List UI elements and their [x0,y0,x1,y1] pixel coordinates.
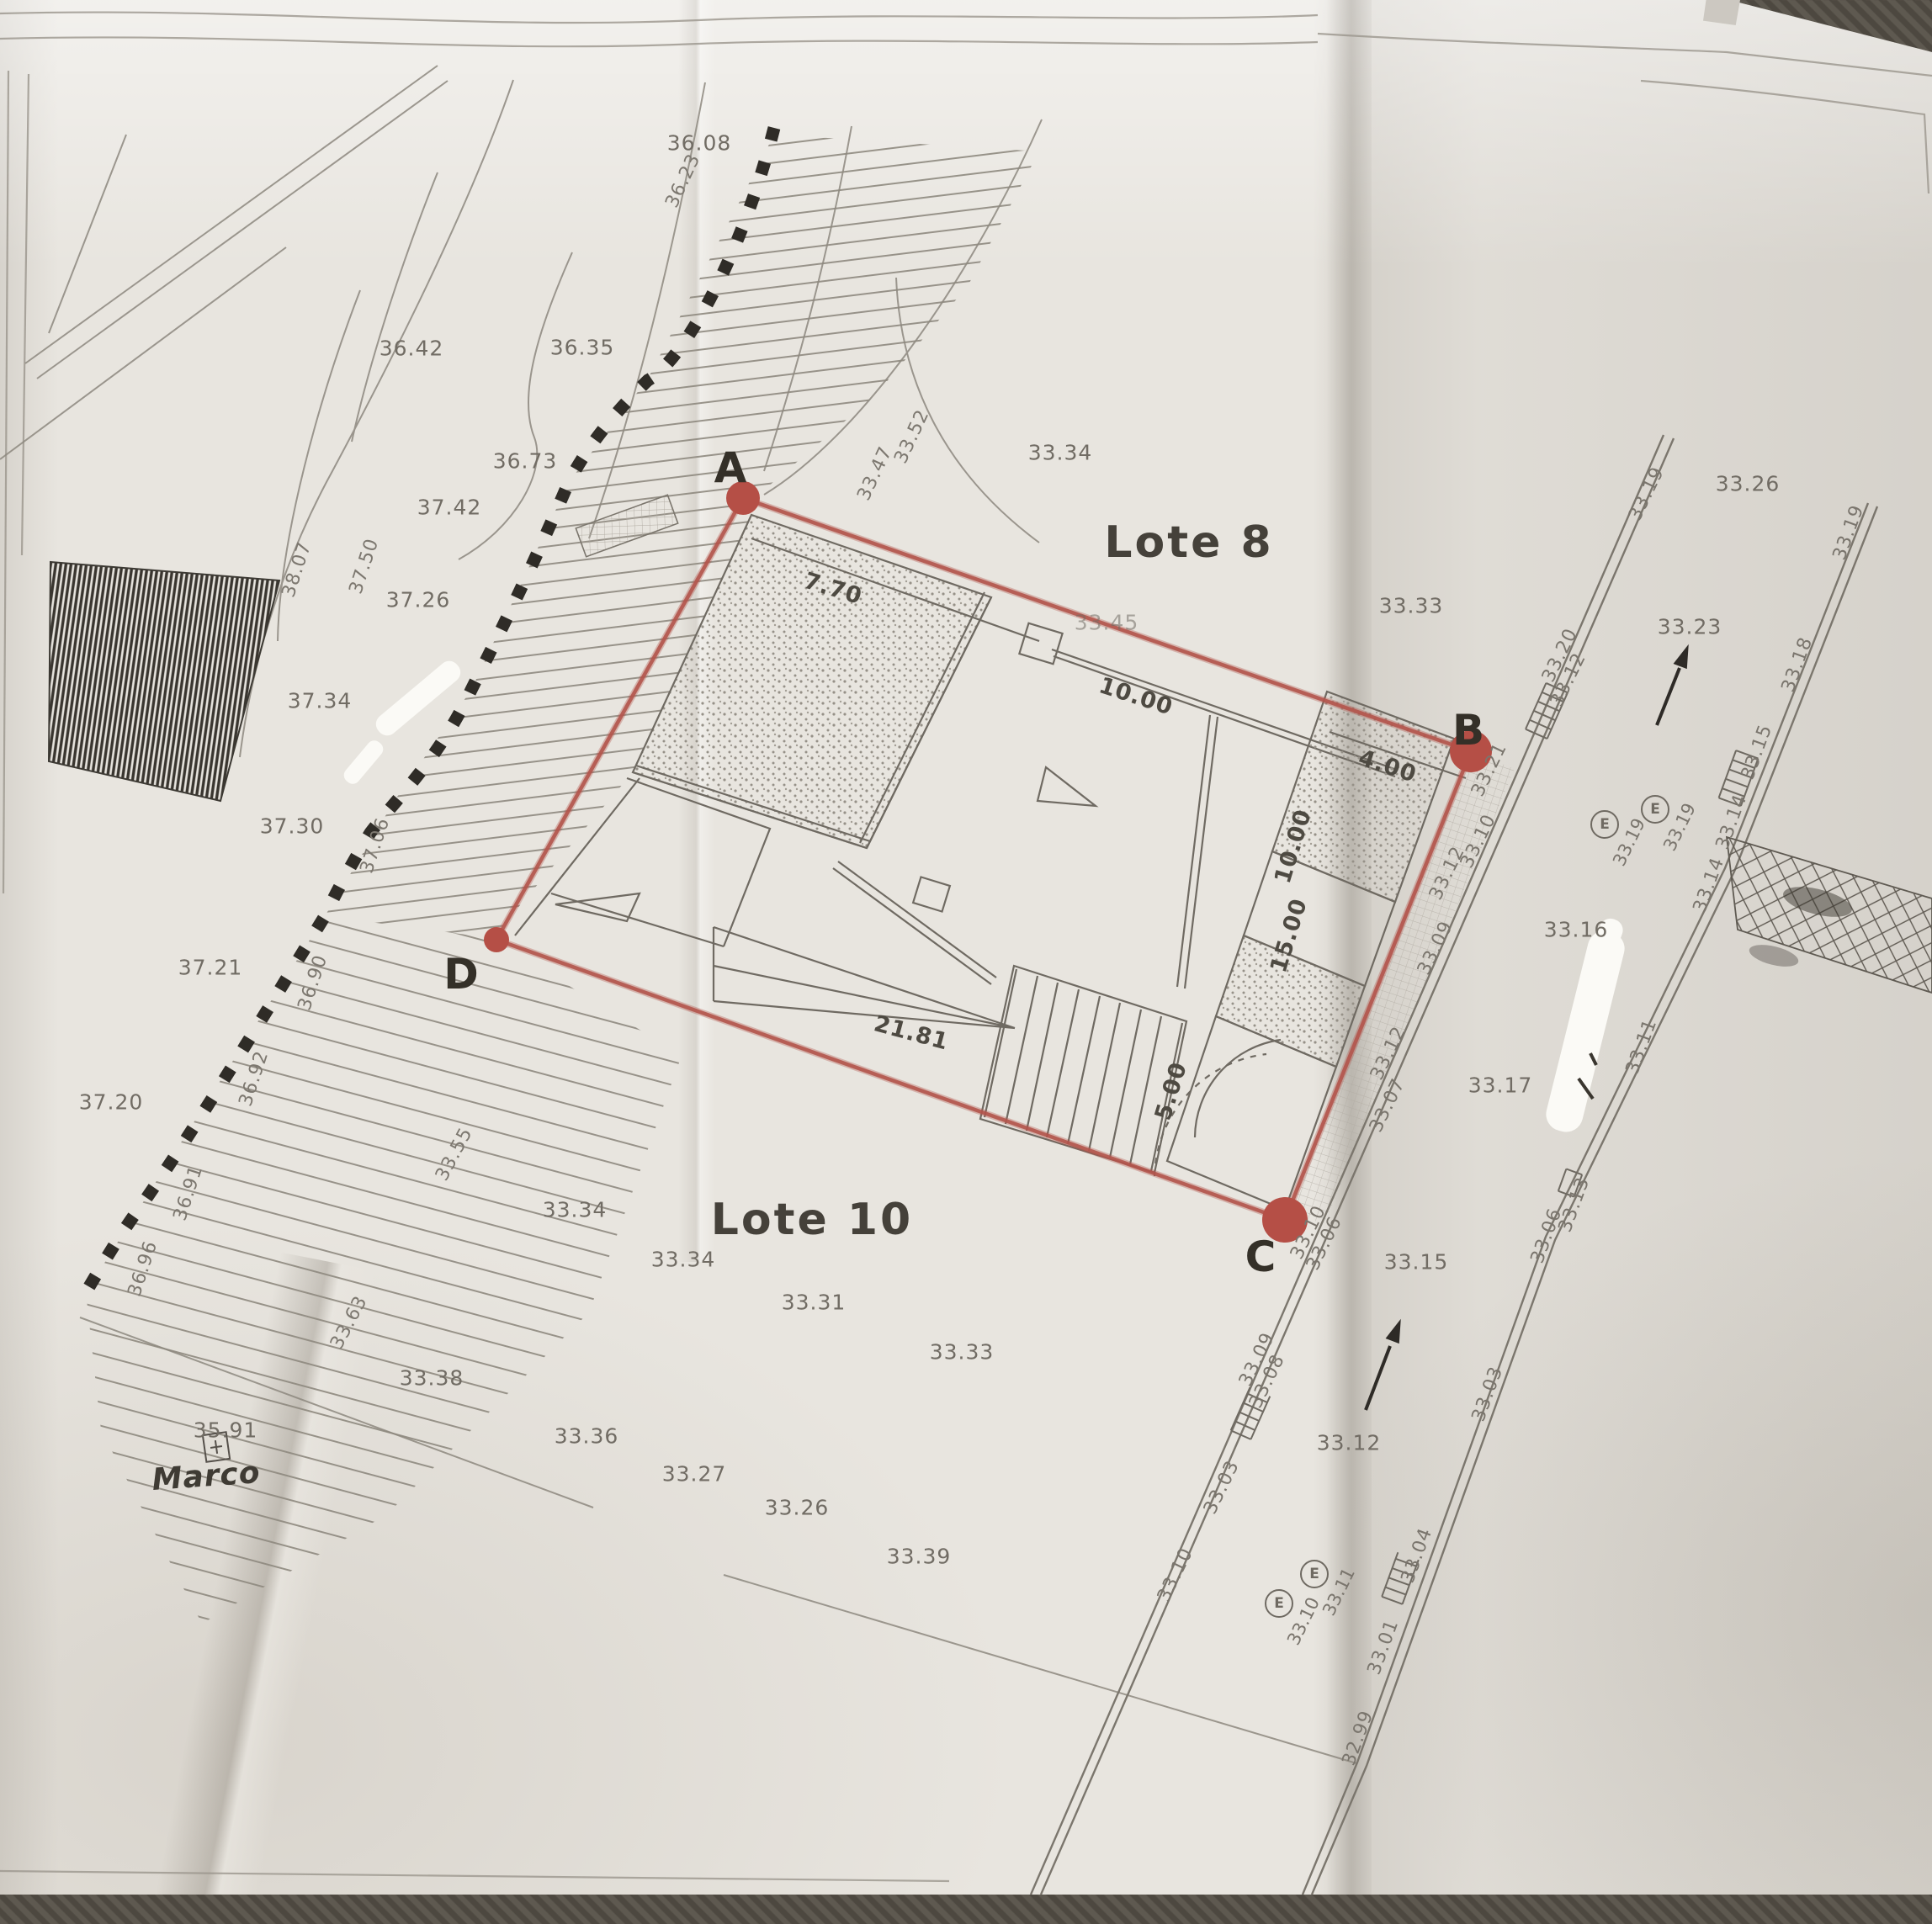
hachure-field-lower [86,916,682,1624]
wall-box-symbol-2 [913,877,950,911]
north-arrow-icon-2 [1366,1317,1407,1410]
door-arc [1195,1040,1281,1137]
photographed-site-plan: { "plan": { "lot_labels": [ {"t":"Lote 8… [0,0,1932,1895]
road-lines [1031,435,1877,1895]
room-triangle-symbol [1038,767,1096,806]
corner-dot-b [1450,730,1492,772]
dark-hatched-structure [49,562,279,801]
road-2 [1303,503,1877,1895]
corner-dot-d [484,927,509,952]
site-plan-drawing [0,0,1932,1895]
stair-treads [985,969,1182,1171]
corner-dot-c [1262,1197,1308,1243]
sheet-border-lines [0,13,1932,1881]
hachure-field-upper [325,135,1039,938]
north-arrow-icon [1657,643,1695,725]
corner-dot-a [726,481,760,515]
